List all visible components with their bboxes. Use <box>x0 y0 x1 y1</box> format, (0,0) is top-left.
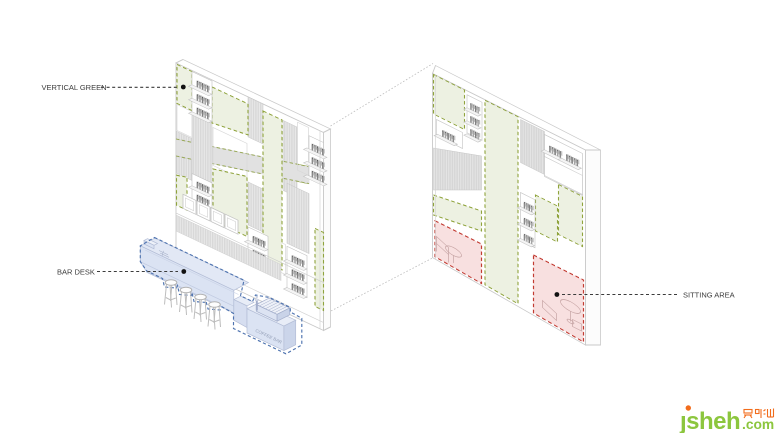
svg-text:.com: .com <box>742 417 774 432</box>
svg-text:VERTICAL GREEN: VERTICAL GREEN <box>42 83 107 92</box>
svg-text:SITTING AREA: SITTING AREA <box>683 291 735 300</box>
svg-text:BAR DESK: BAR DESK <box>57 268 95 277</box>
